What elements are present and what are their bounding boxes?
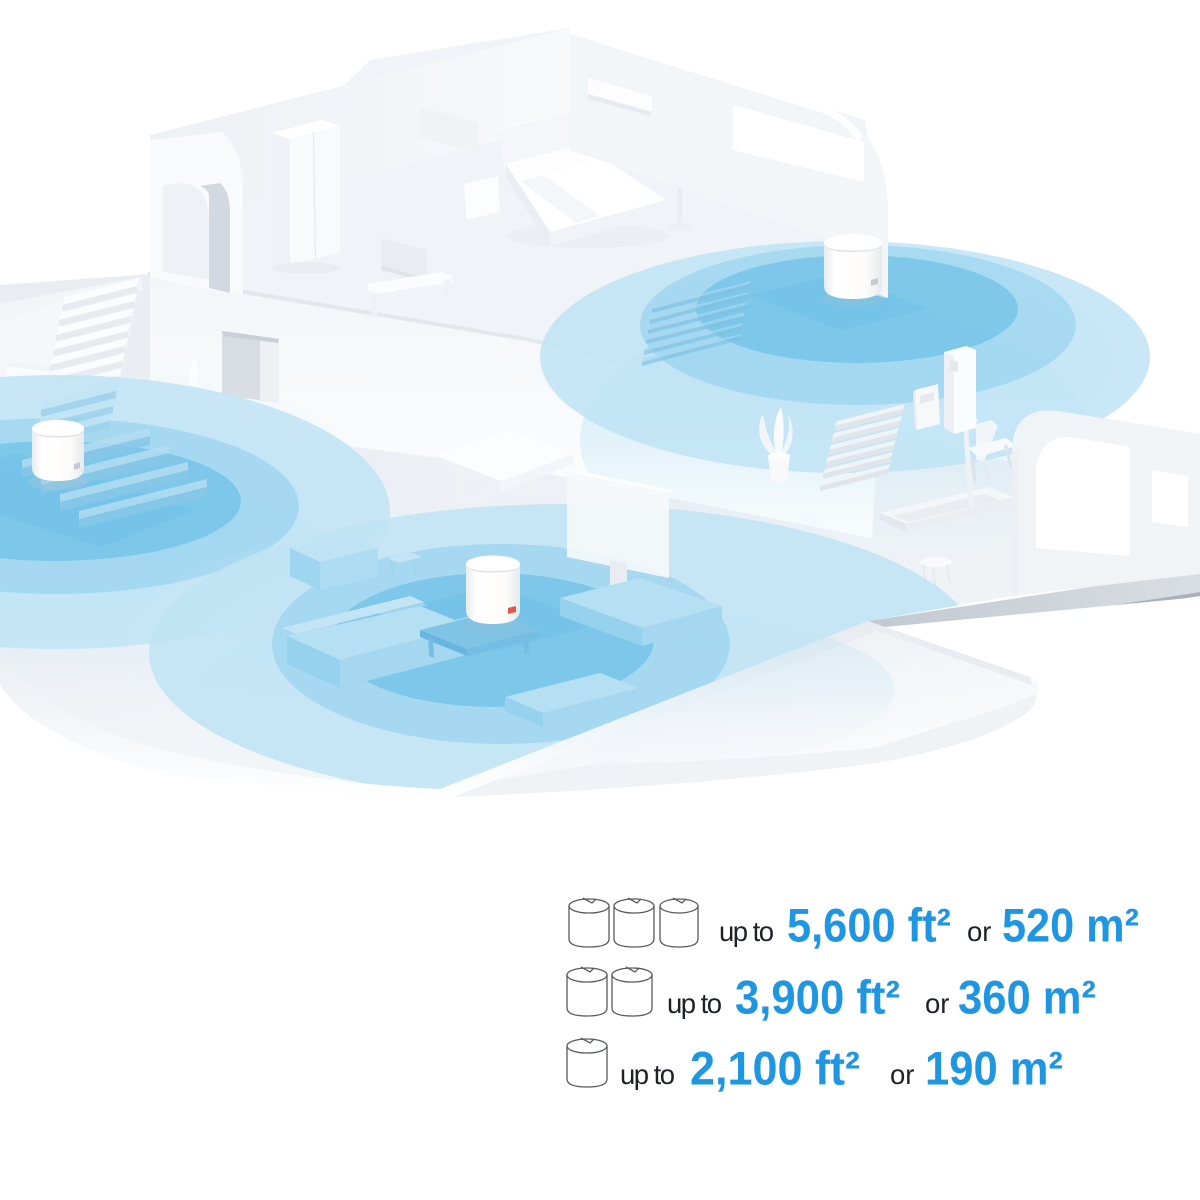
svg-text:360 m²: 360 m² [958,971,1096,1024]
svg-text:or: or [925,988,949,1019]
svg-text:3,900 ft²: 3,900 ft² [735,971,900,1024]
svg-text:190 m²: 190 m² [925,1042,1063,1095]
svg-text:or: or [890,1059,914,1090]
svg-text:or: or [967,916,991,947]
svg-text:up to: up to [667,988,722,1019]
svg-text:up to: up to [719,916,774,947]
svg-text:up to: up to [620,1059,675,1090]
svg-text:2,100 ft²: 2,100 ft² [690,1042,860,1095]
svg-text:5,600 ft²: 5,600 ft² [787,899,951,952]
svg-text:520 m²: 520 m² [1002,899,1139,952]
